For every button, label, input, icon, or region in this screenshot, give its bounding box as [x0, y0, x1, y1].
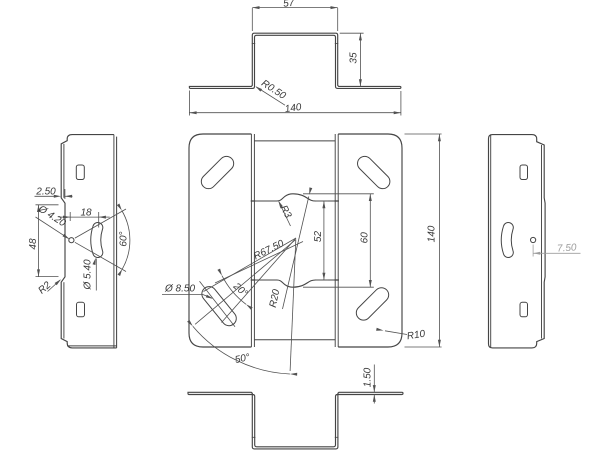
svg-text:Ø 5.40: Ø 5.40: [83, 259, 94, 290]
svg-text:52: 52: [313, 231, 324, 243]
svg-text:140: 140: [427, 225, 438, 242]
svg-text:60°: 60°: [119, 231, 130, 246]
svg-text:60: 60: [359, 232, 370, 244]
svg-text:18: 18: [80, 207, 92, 218]
svg-text:1.50: 1.50: [363, 367, 374, 387]
svg-text:48: 48: [28, 238, 39, 250]
svg-text:2.50: 2.50: [35, 186, 56, 197]
svg-text:Ø 8.50: Ø 8.50: [164, 284, 195, 295]
svg-text:7.50: 7.50: [557, 242, 578, 254]
svg-text:57: 57: [283, 0, 296, 10]
svg-text:35: 35: [348, 52, 359, 64]
